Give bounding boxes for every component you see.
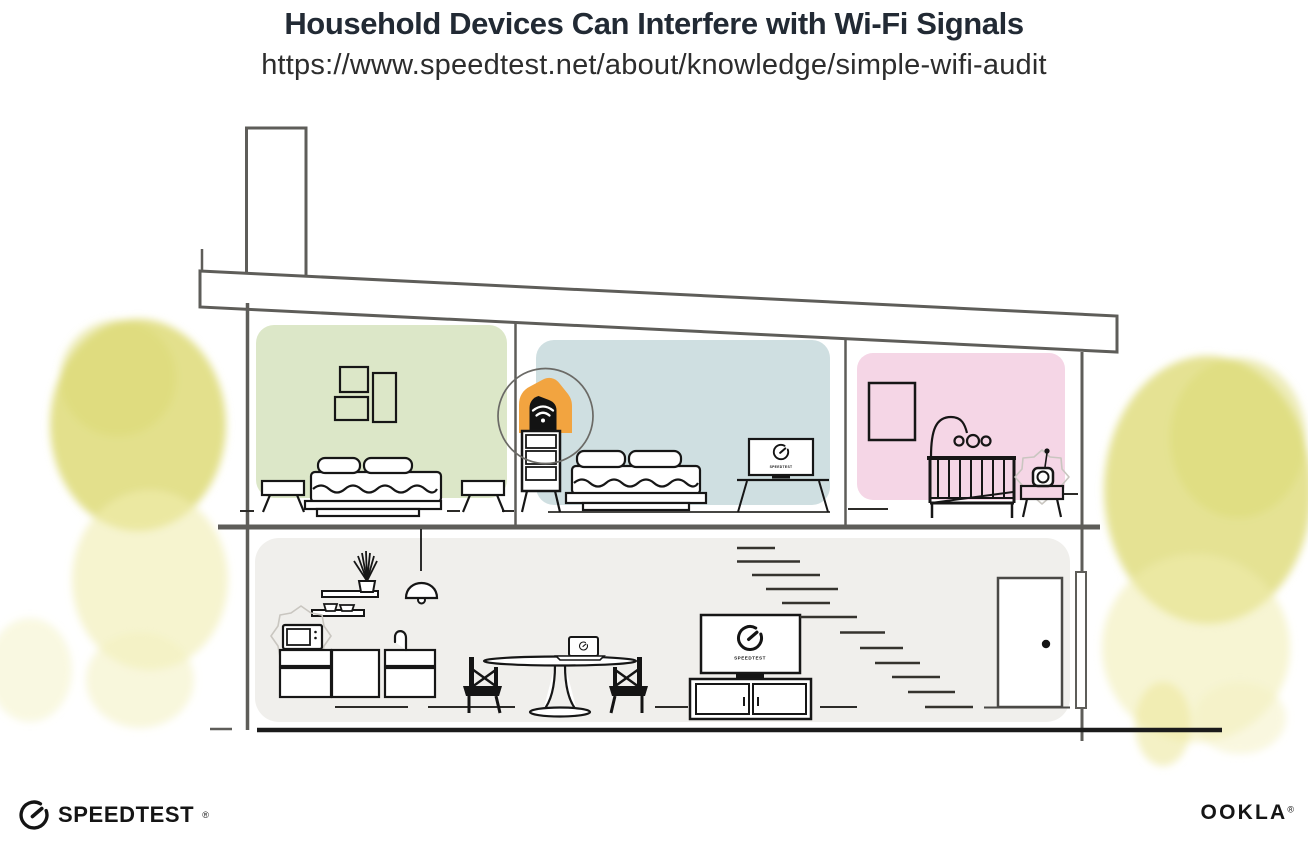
- speedtest-gauge-icon: [18, 799, 50, 831]
- page-header: Household Devices Can Interfere with Wi-…: [0, 6, 1308, 82]
- house-illustration: SPEEDTEST: [0, 0, 1308, 861]
- tv-living: SPEEDTEST: [701, 615, 800, 678]
- tv-living-label: SPEEDTEST: [734, 656, 766, 661]
- right-tree: [1102, 356, 1308, 766]
- ookla-logo: OOKLA®: [1201, 801, 1294, 825]
- bowl: [324, 604, 337, 611]
- tv-bedroom-label: SPEEDTEST: [770, 465, 793, 469]
- chimney: [247, 128, 307, 293]
- left-tree: [0, 319, 228, 728]
- door: [984, 578, 1070, 708]
- ookla-wordmark: OOKLA: [1201, 801, 1288, 824]
- bowl: [340, 605, 354, 611]
- ookla-trademark: ®: [1287, 805, 1294, 815]
- speedtest-trademark: ®: [202, 810, 209, 820]
- page-title: Household Devices Can Interfere with Wi-…: [0, 6, 1308, 42]
- microwave-icon: [283, 625, 322, 649]
- monitor-table: [1021, 486, 1063, 517]
- downspout: [1076, 572, 1086, 708]
- tv-console: [690, 679, 811, 719]
- speedtest-logo: SPEEDTEST®: [18, 799, 209, 831]
- speedtest-wordmark: SPEEDTEST: [58, 799, 194, 831]
- door-knob: [1042, 640, 1050, 648]
- source-url: https://www.speedtest.net/about/knowledg…: [0, 49, 1308, 82]
